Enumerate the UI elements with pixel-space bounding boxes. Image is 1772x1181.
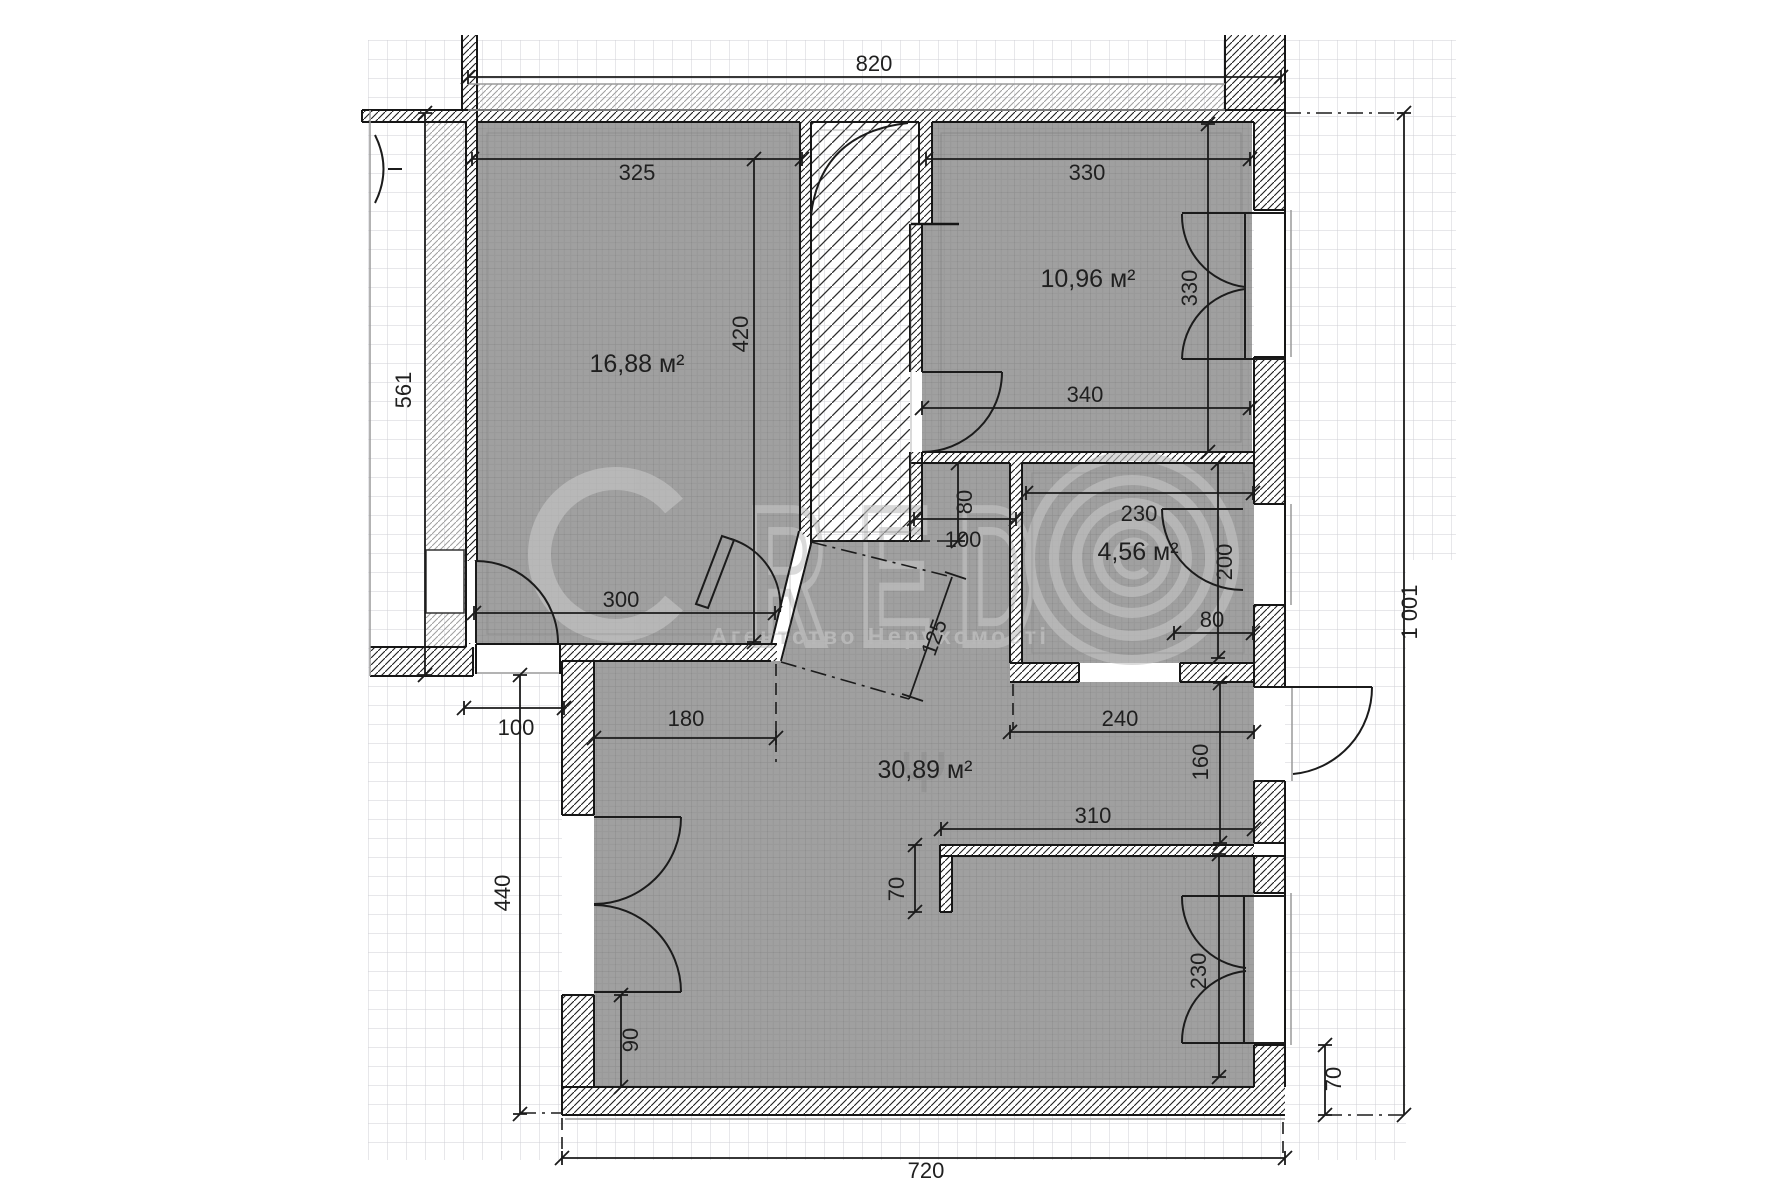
- svg-text:330: 330: [1069, 160, 1106, 185]
- svg-text:325: 325: [619, 160, 656, 185]
- svg-text:70: 70: [884, 877, 909, 901]
- svg-text:10,96 м²: 10,96 м²: [1040, 265, 1135, 293]
- svg-text:420: 420: [728, 316, 753, 353]
- svg-text:80: 80: [952, 490, 977, 514]
- svg-text:310: 310: [1075, 803, 1112, 828]
- svg-text:4,56 м²: 4,56 м²: [1097, 538, 1178, 566]
- svg-text:70: 70: [1321, 1067, 1346, 1091]
- svg-text:160: 160: [1188, 744, 1213, 781]
- svg-text:230: 230: [1186, 953, 1211, 990]
- svg-text:230: 230: [1121, 501, 1158, 526]
- svg-text:16,88 м²: 16,88 м²: [589, 350, 684, 378]
- svg-text:240: 240: [1102, 706, 1139, 731]
- svg-text:30,89 м²: 30,89 м²: [877, 756, 972, 784]
- svg-text:300: 300: [603, 587, 640, 612]
- svg-text:90: 90: [618, 1028, 643, 1052]
- svg-text:Агентство Нерухомості: Агентство Нерухомості: [711, 623, 1050, 649]
- svg-text:820: 820: [856, 51, 893, 76]
- svg-text:100: 100: [498, 715, 535, 740]
- svg-text:330: 330: [1177, 270, 1202, 307]
- svg-text:1 001: 1 001: [1397, 584, 1422, 639]
- svg-text:440: 440: [490, 875, 515, 912]
- svg-text:200: 200: [1212, 544, 1237, 581]
- svg-text:720: 720: [908, 1158, 945, 1181]
- svg-text:561: 561: [391, 372, 416, 409]
- svg-text:340: 340: [1067, 382, 1104, 407]
- svg-text:100: 100: [945, 527, 982, 552]
- svg-text:80: 80: [1200, 607, 1224, 632]
- svg-text:180: 180: [668, 706, 705, 731]
